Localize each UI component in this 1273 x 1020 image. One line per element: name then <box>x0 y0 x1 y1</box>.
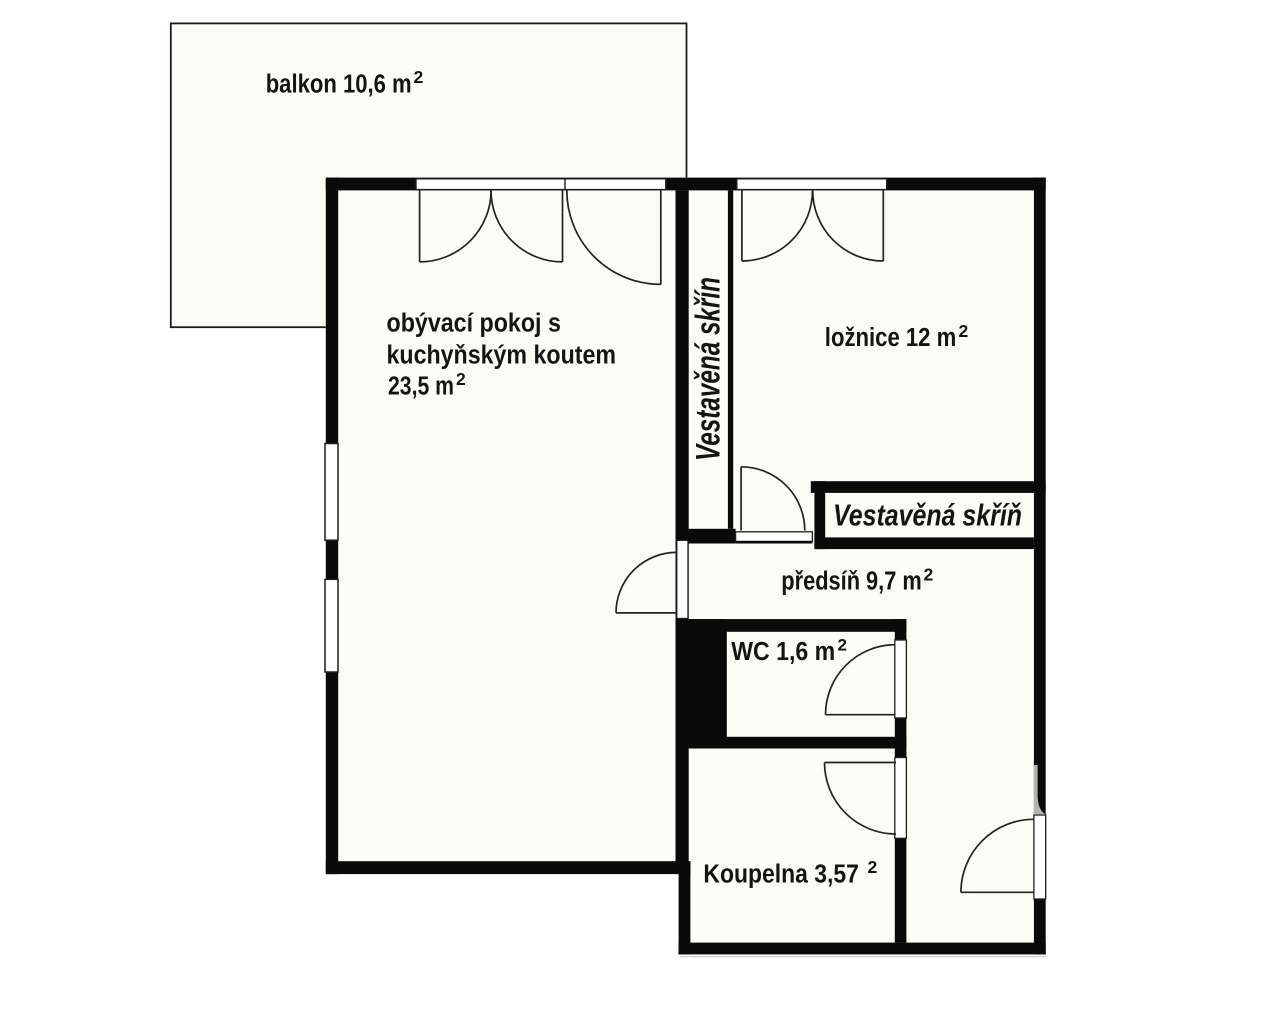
svg-text:ložnice 12 m: ložnice 12 m <box>825 324 957 352</box>
svg-text:2: 2 <box>414 67 424 87</box>
svg-text:2: 2 <box>456 369 466 389</box>
svg-text:23,5 m: 23,5 m <box>388 373 454 401</box>
svg-text:Vestavěná skříň: Vestavěná skříň <box>833 499 1022 533</box>
svg-text:balkon 10,6 m: balkon 10,6 m <box>266 70 412 98</box>
svg-text:2: 2 <box>924 564 934 584</box>
svg-text:Vestavěná skřín: Vestavěná skřín <box>690 277 728 461</box>
svg-text:2: 2 <box>959 321 969 341</box>
svg-text:předsíň 9,7 m: předsíň 9,7 m <box>781 568 922 596</box>
svg-text:WC 1,6 m: WC 1,6 m <box>731 638 835 666</box>
svg-text:Koupelna 3,57: Koupelna 3,57 <box>703 861 859 889</box>
svg-text:2: 2 <box>838 636 847 655</box>
svg-text:obývací pokoj s: obývací pokoj s <box>387 310 561 338</box>
svg-text:kuchyňským koutem: kuchyňským koutem <box>387 341 617 369</box>
svg-text:2: 2 <box>868 857 878 877</box>
